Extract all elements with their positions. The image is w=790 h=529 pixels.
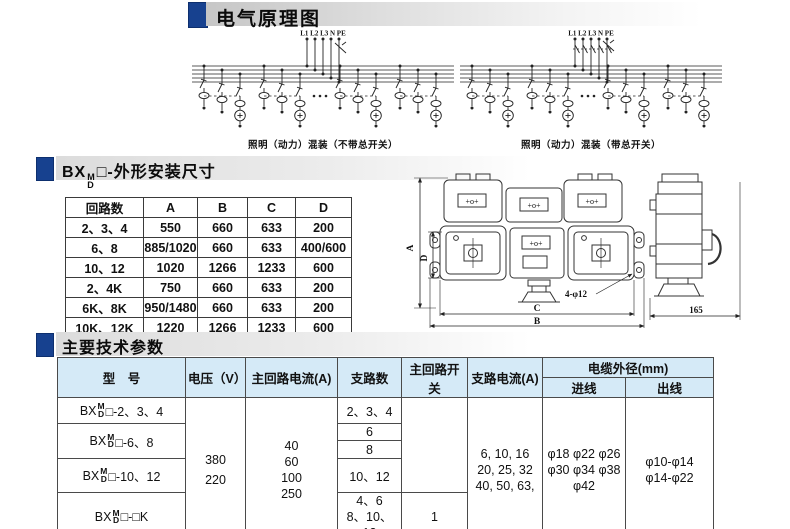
dim-header-cell: 回路数	[66, 198, 144, 218]
dim-cell: 550	[144, 218, 198, 238]
dim-cell: 750	[144, 278, 198, 298]
model-cell: BXMD□-10、12	[58, 459, 186, 493]
dimensions-table: 回路数 A B C D 2、3、4 550 660 633 200 6、8 88…	[65, 197, 352, 338]
dim-header-cell: C	[248, 198, 296, 218]
diagram-caption: 照明（动力）混装（不带总开关）	[248, 139, 398, 151]
side-dimensions	[650, 182, 740, 320]
dim-row: 2、4K 750 660 633 200	[66, 278, 352, 298]
dim-cell: 1266	[198, 258, 248, 278]
dim-cell: 1020	[144, 258, 198, 278]
specs-table: 型 号 电压（V） 主回路电流(A) 支路数 主回路开关 支路电流(A) 电缆外…	[57, 357, 714, 529]
model-suffix: □-6、8	[115, 432, 153, 451]
dim-cell: 950/1480	[144, 298, 198, 318]
main-switch-empty-cell	[402, 398, 468, 493]
dim-cell: 6K、8K	[66, 298, 144, 318]
dim-cell: 10、12	[66, 258, 144, 278]
diagram-caption: 照明（动力）混装（带总开关）	[521, 139, 661, 151]
title-suffix: □-外形安装尺寸	[97, 164, 216, 181]
col-inlet-header: 进线	[543, 378, 626, 398]
dim-cell: 633	[248, 218, 296, 238]
model-sub: D	[112, 517, 119, 525]
dim-cell: 200	[296, 278, 352, 298]
model-prefix: BX	[80, 404, 97, 418]
dim-cell: 633	[248, 298, 296, 318]
model-md-stack: MD	[100, 468, 107, 483]
model-md-stack: MD	[107, 434, 114, 449]
branch-count-cell: 4、6 8、10、12	[338, 493, 402, 529]
col-branch-count-header: 支路数	[338, 358, 402, 398]
dim-row: 6、8 885/1020 660 633 400/600	[66, 238, 352, 258]
section3-blue-square	[36, 333, 54, 357]
dim-c-label: C	[534, 304, 541, 314]
incoming-lines-label: L1 L2 L3 N PE	[568, 30, 614, 38]
model-sub: D	[107, 441, 114, 449]
model-prefix: BX	[95, 510, 112, 524]
front-view	[430, 174, 644, 302]
dim-row: 6K、8K 950/1480 660 633 200	[66, 298, 352, 318]
terminal-mark: +o+	[527, 201, 541, 210]
dim-d-label: D	[420, 254, 430, 261]
branch-count-cell: 8	[338, 441, 402, 459]
main-switch-value-cell: 1	[402, 493, 468, 529]
model-md-stack: MD	[98, 403, 105, 418]
dim-header-row: 回路数 A B C D	[66, 198, 352, 218]
circuit-diagram-with-main-switch: L1 L2 L3 N PE	[452, 26, 730, 153]
model-cell: BXMD□-2、3、4	[58, 398, 186, 424]
title-md-stack: MD	[87, 173, 96, 189]
model-sub: D	[98, 411, 105, 419]
col-cable-od-header: 电缆外径(mm)	[543, 358, 714, 378]
model-md-stack: MD	[112, 510, 119, 525]
outline-drawing: +o+ +o+ +o+ +o+ A D C B 4-φ12 165	[400, 168, 790, 333]
terminal-mark: +o+	[585, 197, 599, 206]
model-cell: BXMD□-□K	[58, 493, 186, 529]
spec-header-row1: 型 号 电压（V） 主回路电流(A) 支路数 主回路开关 支路电流(A) 电缆外…	[58, 358, 714, 378]
col-model-header: 型 号	[58, 358, 186, 398]
section2-title: BXMD□-外形安装尺寸	[62, 158, 216, 189]
section2-blue-square	[36, 157, 54, 181]
dim-cell: 2、3、4	[66, 218, 144, 238]
dim-cell: 885/1020	[144, 238, 198, 258]
depth-dimension-label: 165	[689, 305, 703, 315]
branch-count-cell: 10、12	[338, 459, 402, 493]
inlet-cell: φ18 φ22 φ26 φ30 φ34 φ38 φ42	[543, 398, 626, 529]
dim-cell: 1233	[248, 258, 296, 278]
dim-header-cell: D	[296, 198, 352, 218]
dim-cell: 660	[198, 218, 248, 238]
model-sub: D	[100, 476, 107, 484]
dim-cell: 660	[198, 298, 248, 318]
dim-b-label: B	[534, 317, 541, 327]
dim-cell: 660	[198, 238, 248, 258]
catalog-page: 电气原理图	[0, 0, 790, 529]
main-current-cell: 40 60 100 250	[246, 398, 338, 529]
model-suffix: □-10、12	[108, 466, 160, 485]
dim-header-cell: A	[144, 198, 198, 218]
branch-current-cell: 6, 10, 16 20, 25, 32 40, 50, 63,	[468, 398, 543, 529]
model-prefix: BX	[90, 434, 107, 448]
col-branch-current-header: 支路电流(A)	[468, 358, 543, 398]
model-suffix: □-2、3、4	[106, 401, 164, 420]
title-prefix: BX	[62, 164, 86, 181]
dim-cell: 200	[296, 298, 352, 318]
col-main-current-header: 主回路电流(A)	[246, 358, 338, 398]
terminal-mark: +o+	[465, 197, 479, 206]
voltage-cell: 380 220	[186, 398, 246, 529]
section3-title: 主要技术参数	[62, 334, 164, 358]
dim-cell: 633	[248, 238, 296, 258]
branch-count-cell: 6	[338, 424, 402, 441]
dim-cell: 200	[296, 218, 352, 238]
dim-cell: 6、8	[66, 238, 144, 258]
dim-row: 10、12 1020 1266 1233 600	[66, 258, 352, 278]
side-view	[650, 174, 721, 296]
col-outlet-header: 出线	[626, 378, 714, 398]
incoming-lines-label: L1 L2 L3 N PE	[300, 30, 346, 38]
title-sub: D	[87, 181, 96, 189]
model-prefix: BX	[83, 469, 100, 483]
mounting-holes-label: 4-φ12	[565, 289, 588, 299]
dim-a-label: A	[406, 244, 416, 251]
dim-row: 2、3、4 550 660 633 200	[66, 218, 352, 238]
spec-row-234: BXMD□-2、3、4 380 220 40 60 100 250 2、3、4 …	[58, 398, 714, 424]
terminal-mark: +o+	[529, 239, 543, 248]
col-main-switch-header: 主回路开关	[402, 358, 468, 398]
section1-blue-square	[188, 2, 208, 28]
circuit-diagram-no-main-switch: L1 L2 L3 N PE 照明（动力）混装（不带总开关）	[184, 26, 462, 153]
dim-cell: 633	[248, 278, 296, 298]
branch-count-cell: 2、3、4	[338, 398, 402, 424]
dim-cell: 400/600	[296, 238, 352, 258]
model-suffix: □-□K	[121, 510, 149, 524]
model-cell: BXMD□-6、8	[58, 424, 186, 459]
dim-cell: 660	[198, 278, 248, 298]
dim-header-cell: B	[198, 198, 248, 218]
dim-cell: 600	[296, 258, 352, 278]
dim-cell: 2、4K	[66, 278, 144, 298]
col-voltage-header: 电压（V）	[186, 358, 246, 398]
outlet-cell: φ10-φ14 φ14-φ22	[626, 398, 714, 529]
